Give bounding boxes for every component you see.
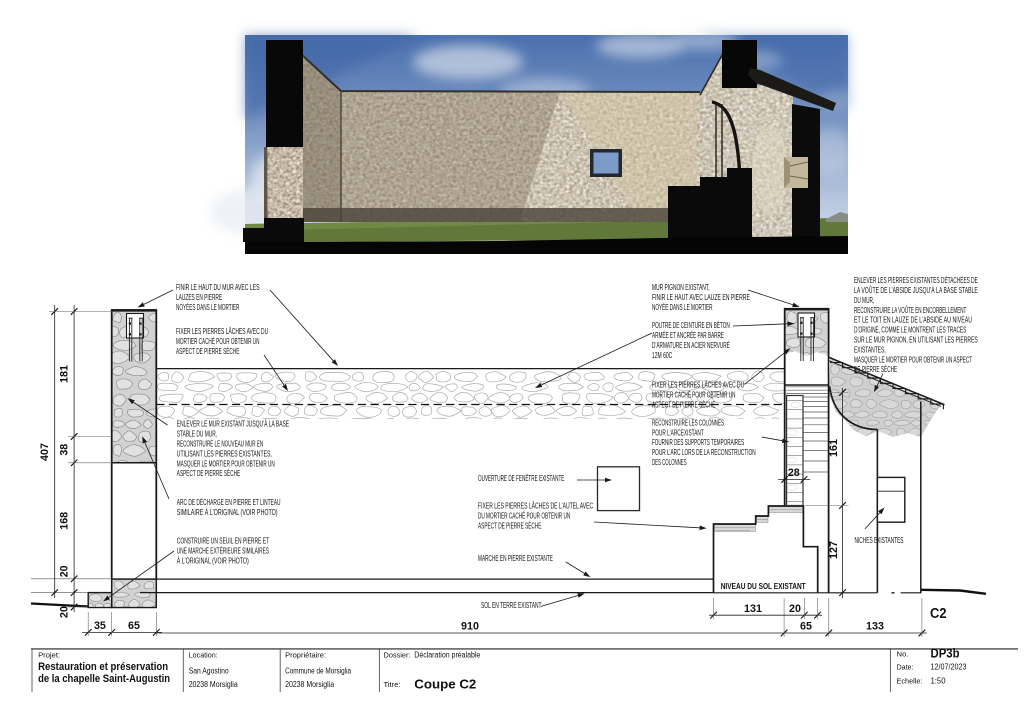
svg-text:SOL EN TERRE EXISTANT: SOL EN TERRE EXISTANT: [481, 600, 542, 610]
svg-text:POUTRE DE CEINTURE EN BÉTON: POUTRE DE CEINTURE EN BÉTON: [652, 320, 730, 330]
svg-text:À L’ORIGINAL (VOIR PHOTO): À L’ORIGINAL (VOIR PHOTO): [177, 555, 249, 565]
svg-text:DU MUR,: DU MUR,: [854, 295, 874, 305]
svg-text:20238 Morsiglia: 20238 Morsiglia: [189, 680, 238, 689]
svg-text:35: 35: [94, 620, 106, 632]
svg-text:28: 28: [788, 467, 800, 479]
svg-text:FIXER LES PIERRES LÂCHES AVEC: FIXER LES PIERRES LÂCHES AVEC DU: [652, 380, 744, 390]
svg-text:MORTIER CACHÉ POUR OBTENIR UN: MORTIER CACHÉ POUR OBTENIR UN: [176, 336, 260, 346]
svg-text:POUR L’ARC LORS DE LA RECONSTR: POUR L’ARC LORS DE LA RECONSTRUCTION: [652, 447, 756, 457]
svg-text:65: 65: [800, 621, 812, 633]
svg-text:CONSTRUIRE UN SEUIL EN PIERRE: CONSTRUIRE UN SEUIL EN PIERRE ET: [177, 536, 269, 546]
svg-text:Date:: Date:: [897, 663, 914, 672]
svg-text:D’ORIGINE, COMME LE MONTRENT L: D’ORIGINE, COMME LE MONTRENT LES TRACES: [854, 325, 966, 335]
svg-text:LAUZES EN PIERRE: LAUZES EN PIERRE: [176, 292, 222, 302]
svg-text:FIXER LES PIERRES LÂCHES AVEC: FIXER LES PIERRES LÂCHES AVEC DU: [176, 326, 268, 336]
svg-text:ASPECT DE PIERRE SÈCHE: ASPECT DE PIERRE SÈCHE: [478, 520, 542, 530]
svg-text:STABLE DU MUR,: STABLE DU MUR,: [177, 429, 217, 439]
svg-text:FIXER LES PIERRES LÂCHES DE L’: FIXER LES PIERRES LÂCHES DE L’AUTEL AVEC: [478, 501, 593, 511]
svg-text:LA VOÛTE DE L’ABSIDE JUSQU’À L: LA VOÛTE DE L’ABSIDE JUSQU’À LA BASE STA…: [854, 285, 978, 295]
svg-text:Echelle:: Echelle:: [897, 677, 923, 686]
svg-text:RECONSTRUIRE LES COLONNES: RECONSTRUIRE LES COLONNES: [652, 417, 724, 427]
svg-text:910: 910: [461, 621, 479, 633]
svg-text:Coupe C2: Coupe C2: [414, 677, 476, 692]
svg-text:MARCHE EN PIERRE EXISTANTE: MARCHE EN PIERRE EXISTANTE: [478, 553, 553, 563]
svg-text:NICHES EXISTANTES: NICHES EXISTANTES: [855, 535, 904, 545]
svg-text:20: 20: [59, 565, 71, 577]
svg-text:ENLEVER LES PIERRES EXISTANTES: ENLEVER LES PIERRES EXISTANTES DÉTACHÉES…: [854, 275, 978, 285]
svg-text:38: 38: [59, 444, 71, 456]
svg-text:Déclaration préalable: Déclaration préalable: [414, 651, 480, 660]
svg-text:San Agostino: San Agostino: [189, 667, 229, 676]
svg-text:1:50: 1:50: [931, 677, 947, 686]
svg-text:UTILISANT LES PIERRES EXISTANT: UTILISANT LES PIERRES EXISTANTES,: [177, 448, 272, 458]
svg-text:ENLEVER LE MUR EXISTANT JUSQU’: ENLEVER LE MUR EXISTANT JUSQU’À LA BASE: [177, 419, 289, 429]
svg-text:MORTIER CACHÉ POUR OBTENIR UN: MORTIER CACHÉ POUR OBTENIR UN: [652, 389, 736, 399]
svg-text:20: 20: [59, 606, 71, 618]
svg-text:12M 60C: 12M 60C: [652, 350, 672, 360]
svg-text:20238 Morsiglia: 20238 Morsiglia: [285, 680, 334, 689]
svg-text:Titre:: Titre:: [384, 680, 401, 689]
svg-text:POUR L’ARCEXISTANT: POUR L’ARCEXISTANT: [652, 427, 704, 437]
svg-text:ASPECT DE PIERRE SÈCHE: ASPECT DE PIERRE SÈCHE: [652, 399, 716, 409]
svg-text:ARMÉE ET ANCRÉE PAR BARRE: ARMÉE ET ANCRÉE PAR BARRE: [652, 330, 724, 340]
svg-text:131: 131: [744, 603, 762, 615]
svg-text:161: 161: [828, 439, 840, 457]
svg-text:No.: No.: [897, 650, 909, 659]
svg-text:FOURNIR DES SUPPORTS TEMPORAIR: FOURNIR DES SUPPORTS TEMPORAIRES: [652, 437, 744, 447]
svg-text:MASQUER LE MORTIER POUR OBTENI: MASQUER LE MORTIER POUR OBTENIR UN: [177, 458, 275, 468]
svg-text:133: 133: [866, 621, 884, 633]
svg-text:de la chapelle Saint-Augustin: de la chapelle Saint-Augustin: [38, 673, 170, 685]
svg-text:Projet:: Projet:: [38, 651, 60, 660]
svg-text:MASQUER LE MORTIER POUR OBTENI: MASQUER LE MORTIER POUR OBTENIR UN ASPEC…: [854, 354, 972, 364]
svg-text:12/07/2023: 12/07/2023: [931, 663, 967, 672]
svg-text:407: 407: [39, 443, 51, 461]
svg-text:65: 65: [128, 620, 140, 632]
svg-text:NOYÉES DANS LE MORTIER: NOYÉES DANS LE MORTIER: [176, 302, 239, 312]
svg-text:FINIR LE HAUT DU MUR AVEC LES: FINIR LE HAUT DU MUR AVEC LES: [176, 282, 260, 292]
svg-text:Commune de Morsiglia: Commune de Morsiglia: [285, 667, 351, 676]
svg-text:RECONSTRUIRE LE NOUVEAU MUR EN: RECONSTRUIRE LE NOUVEAU MUR EN: [177, 439, 263, 449]
svg-text:ET LE TOIT EN LAUZE DE L’ABSID: ET LE TOIT EN LAUZE DE L’ABSIDE AU NIVEA…: [854, 315, 972, 325]
svg-text:ASPECT DE PIERRE SÈCHE: ASPECT DE PIERRE SÈCHE: [176, 346, 240, 356]
svg-text:NOYÉE DANS LE MORTIER: NOYÉE DANS LE MORTIER: [652, 302, 713, 312]
svg-text:Location:: Location:: [189, 651, 218, 660]
svg-text:MUR PIGNON EXISTANT,: MUR PIGNON EXISTANT,: [652, 282, 710, 292]
svg-text:168: 168: [59, 512, 71, 530]
svg-text:UNE MARCHE EXTÉRIEURE SIMILAIR: UNE MARCHE EXTÉRIEURE SIMILAIRES: [177, 545, 269, 555]
svg-text:RECONSTRUIRE LA VOÛTE EN ENCOR: RECONSTRUIRE LA VOÛTE EN ENCORBELLEMENT: [854, 305, 966, 315]
svg-text:D’ARMATURE EN ACIER NERVURÉ: D’ARMATURE EN ACIER NERVURÉ: [652, 340, 730, 350]
svg-text:181: 181: [59, 365, 71, 383]
svg-text:127: 127: [828, 541, 840, 559]
svg-text:FINIR LE HAUT AVEC LAUZE EN PI: FINIR LE HAUT AVEC LAUZE EN PIERRE: [652, 292, 750, 302]
svg-text:ASPECT DE PIERRE SÈCHE: ASPECT DE PIERRE SÈCHE: [177, 468, 241, 478]
svg-text:Propriétaire:: Propriétaire:: [285, 651, 326, 660]
svg-text:DE PIERRE SÈCHE: DE PIERRE SÈCHE: [854, 364, 897, 374]
svg-text:ARC DE DÉCHARGE EN PIERRE ET L: ARC DE DÉCHARGE EN PIERRE ET LINTEAU: [177, 497, 281, 507]
svg-text:DU MORTIER CACHÉ POUR OBTENIR: DU MORTIER CACHÉ POUR OBTENIR UN: [478, 511, 570, 521]
svg-text:OUVERTURE DE FENÊTRE EXISTANTE: OUVERTURE DE FENÊTRE EXISTANTE: [478, 473, 565, 483]
svg-text:EXISTANTES,: EXISTANTES,: [854, 344, 886, 354]
svg-text:Restauration et préservation: Restauration et préservation: [38, 661, 168, 673]
svg-text:C2: C2: [930, 606, 947, 622]
svg-text:SUR LE MUR PIGNON, EN UTILISAN: SUR LE MUR PIGNON, EN UTILISANT LES PIER…: [854, 335, 978, 345]
svg-text:DP3b: DP3b: [931, 647, 960, 661]
svg-text:Dossier:: Dossier:: [384, 651, 411, 660]
svg-text:SIMILAIRE À L’ORIGINAL (VOIR P: SIMILAIRE À L’ORIGINAL (VOIR PHOTO): [177, 507, 278, 517]
svg-text:NIVEAU DU SOL EXISTANT: NIVEAU DU SOL EXISTANT: [721, 581, 807, 591]
svg-text:DES COLONNES: DES COLONNES: [652, 457, 687, 467]
svg-text:20: 20: [789, 603, 801, 615]
